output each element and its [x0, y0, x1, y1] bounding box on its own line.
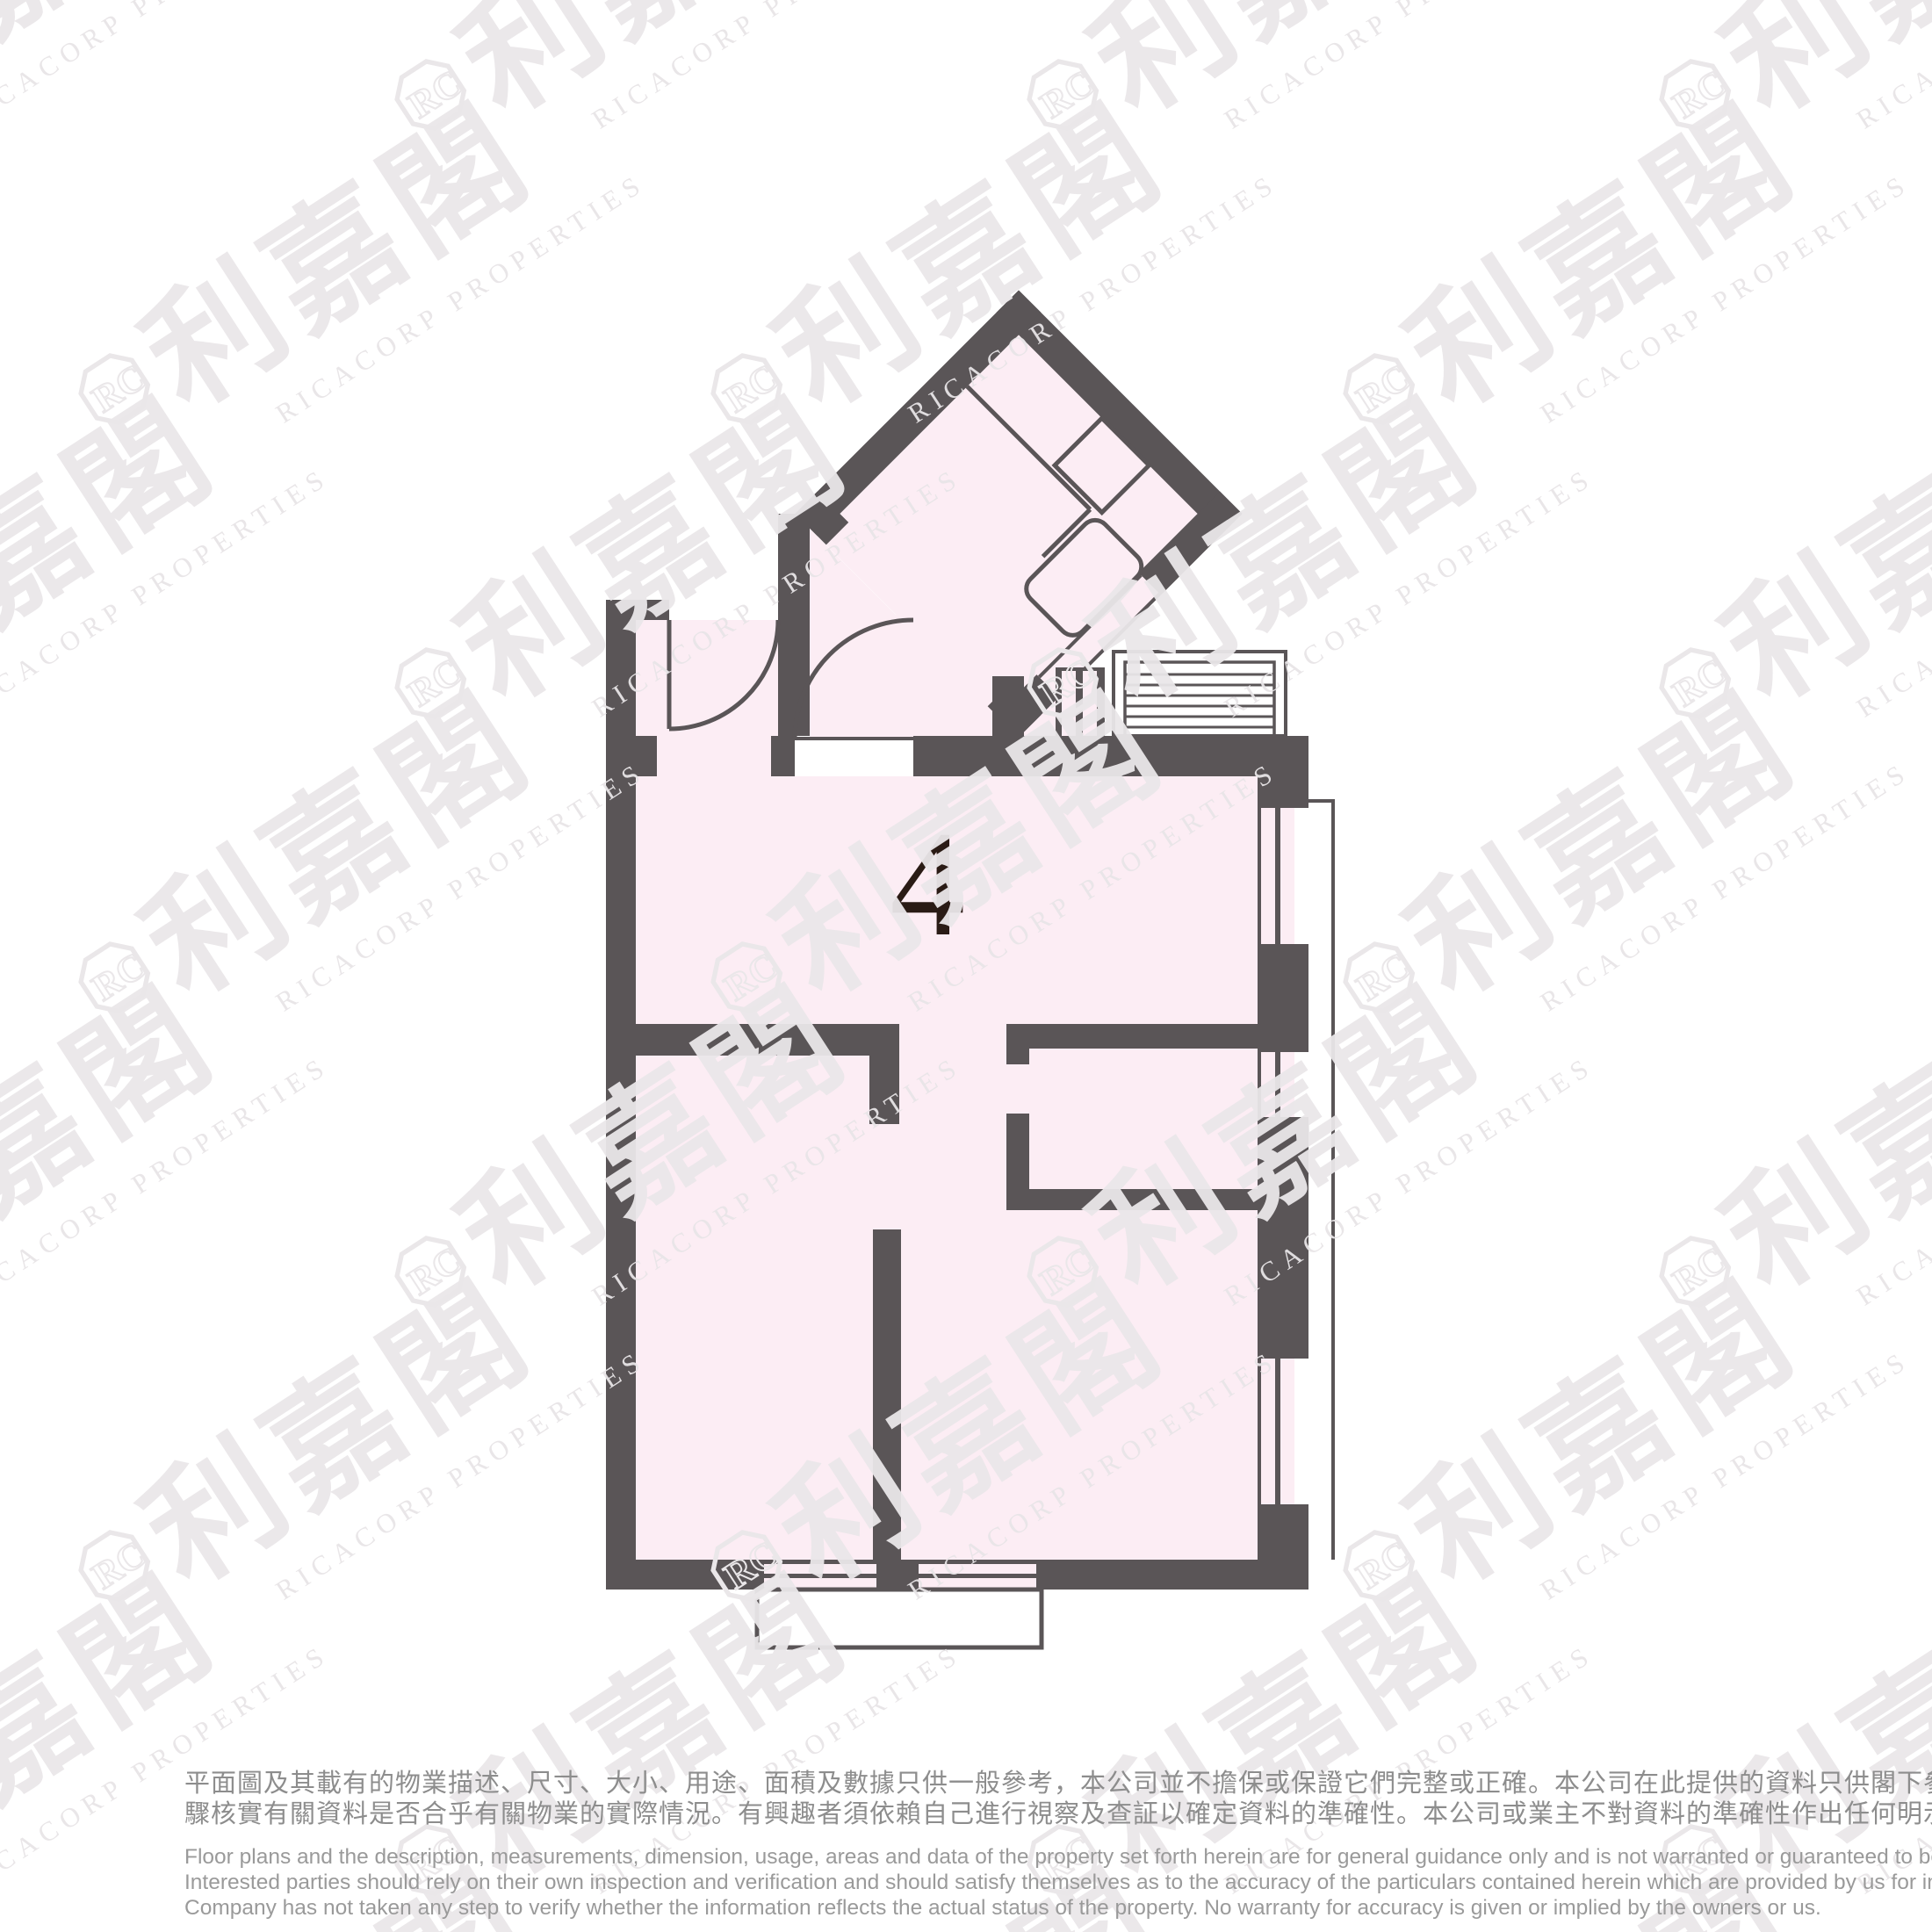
wall-top-left-piece [606, 736, 657, 776]
wall-smallroom-left-lower [1006, 1114, 1029, 1189]
wall-smallroom-top [1006, 1024, 1258, 1049]
balcony-platform [757, 1590, 1042, 1647]
wall-top-pier [771, 736, 795, 776]
wall-hall-right [778, 514, 810, 736]
wall-connector-left [992, 676, 1024, 736]
bay-window-2 [1261, 1052, 1308, 1117]
bay-outer-frame-line [1308, 801, 1333, 1560]
wall-interior-stub [869, 1056, 899, 1124]
disclaimer: 平面圖及其載有的物業描述、尺寸、大小、用途、面積及數據只供一般參考，本公司並不擔… [184, 1769, 1765, 1921]
unit-number-label: 4 [890, 801, 965, 968]
wall-central [873, 1229, 901, 1560]
bay-window-3 [1261, 1359, 1308, 1504]
disclaimer-en-line-2: Interested parties should rely on their … [184, 1870, 1765, 1895]
wall-top-main [913, 736, 1308, 776]
wall-interior-left [636, 1024, 899, 1056]
disclaimer-zh-line-2: 驟核實有關資料是否合乎有關物業的實際情況。有興趣者須依賴自己進行視察及查証以確定… [184, 1799, 1765, 1830]
disclaimer-en-line-1: Floor plans and the description, measure… [184, 1844, 1765, 1870]
disclaimer-en-line-3: Company has not taken any step to verify… [184, 1895, 1765, 1921]
bay-window-1 [1261, 808, 1308, 944]
entrance-hall-floor [636, 620, 778, 776]
disclaimer-en: Floor plans and the description, measure… [184, 1844, 1765, 1921]
disclaimer-zh-line-1: 平面圖及其載有的物業描述、尺寸、大小、用途、面積及數據只供一般參考，本公司並不擔… [184, 1769, 1765, 1799]
wall-smallroom-bottom [1006, 1189, 1258, 1210]
wall-smallroom-left-upper [1006, 1024, 1029, 1064]
floor-plan: 4 [0, 0, 1932, 1932]
louver-window [1114, 652, 1286, 736]
wall-entrance-top [606, 600, 669, 620]
